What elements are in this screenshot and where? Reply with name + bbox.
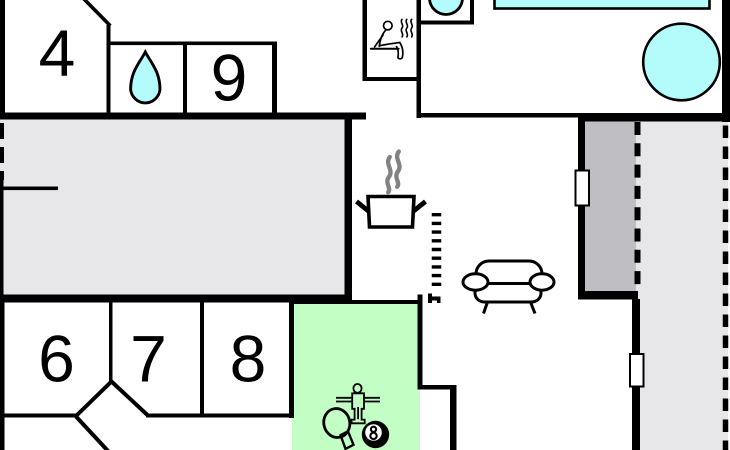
svg-text:4: 4	[39, 16, 76, 90]
svg-text:9: 9	[211, 41, 248, 115]
svg-text:8: 8	[230, 322, 267, 396]
svg-text:7: 7	[130, 322, 167, 396]
svg-text:6: 6	[38, 322, 75, 396]
